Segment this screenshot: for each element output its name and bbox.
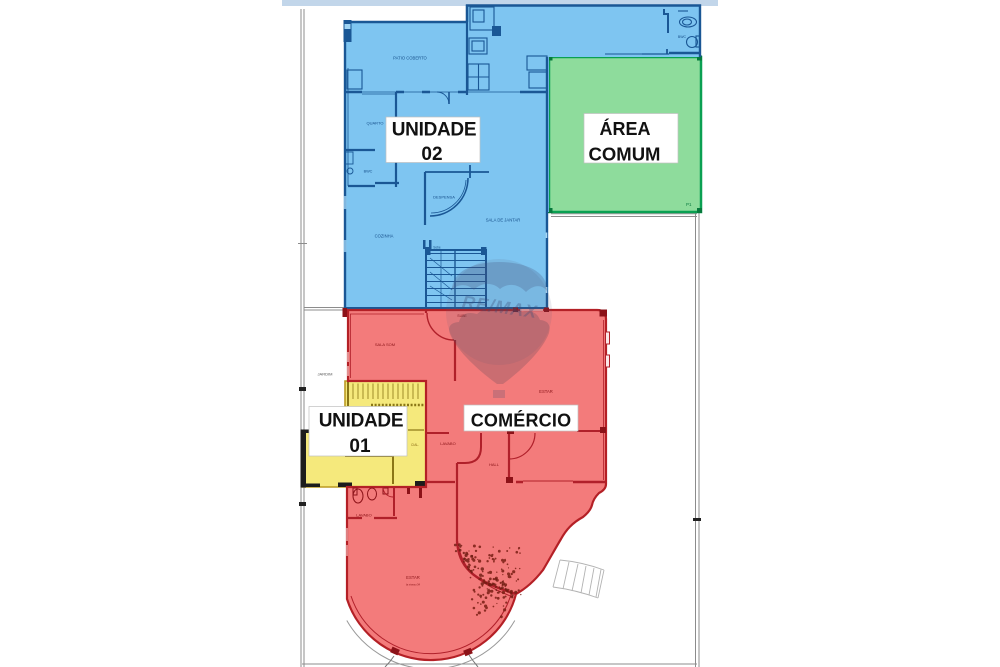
svg-text:ESTAR: ESTAR <box>539 389 553 394</box>
svg-text:01: 01 <box>349 436 371 457</box>
svg-text:SALA SOM: SALA SOM <box>375 342 395 347</box>
svg-text:JARDIM: JARDIM <box>318 372 333 377</box>
svg-text:P1: P1 <box>686 202 692 207</box>
svg-text:COMÉRCIO: COMÉRCIO <box>471 410 572 431</box>
svg-text:SALA DE JANTAR: SALA DE JANTAR <box>486 218 521 223</box>
svg-text:LAVABO: LAVABO <box>440 441 455 446</box>
svg-text:Sobe: Sobe <box>433 246 441 250</box>
svg-text:LAVABO: LAVABO <box>356 513 371 518</box>
svg-text:02: 02 <box>421 144 442 165</box>
svg-text:COZINHA: COZINHA <box>375 234 394 239</box>
svg-text:CIAL.: CIAL. <box>411 443 419 447</box>
svg-text:PATIO COBERTO: PATIO COBERTO <box>393 56 427 61</box>
svg-text:DESPENSA: DESPENSA <box>433 195 455 200</box>
svg-text:ÁREA: ÁREA <box>599 118 650 139</box>
svg-text:UNIDADE: UNIDADE <box>392 120 476 141</box>
svg-text:COMUM: COMUM <box>589 144 661 165</box>
svg-text:QUARTO: QUARTO <box>367 121 384 126</box>
svg-text:la niveau 34: la niveau 34 <box>406 583 421 587</box>
svg-text:ESTAR: ESTAR <box>406 575 420 580</box>
svg-text:HALL: HALL <box>489 462 500 467</box>
svg-text:UNIDADE: UNIDADE <box>319 411 403 432</box>
svg-text:BWC: BWC <box>364 170 373 174</box>
svg-text:BWC: BWC <box>678 35 687 39</box>
